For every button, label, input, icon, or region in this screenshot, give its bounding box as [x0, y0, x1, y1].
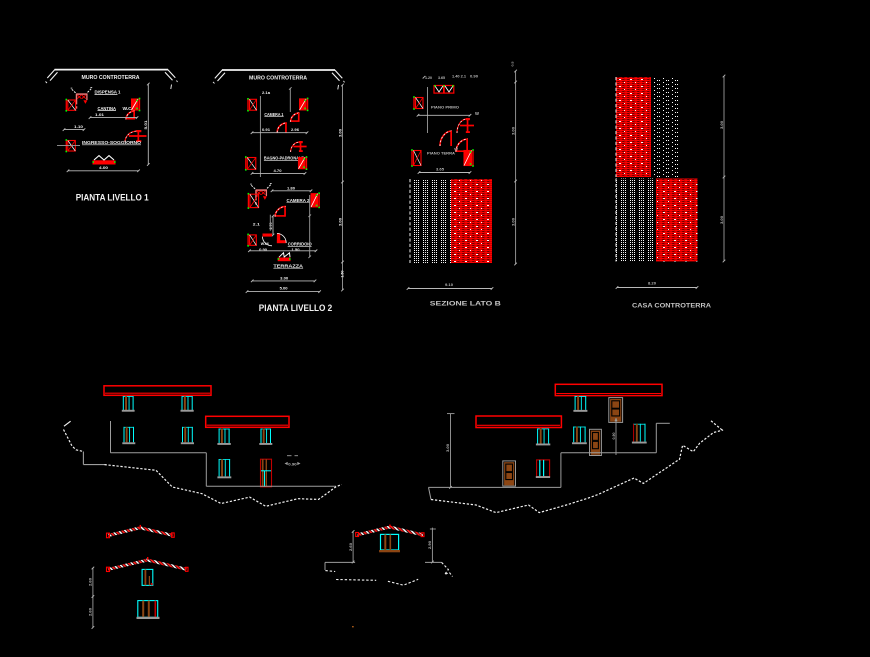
svg-text:1.80: 1.80 — [287, 187, 295, 191]
svg-text:TERRAZZA: TERRAZZA — [273, 263, 303, 268]
svg-text:8.20: 8.20 — [648, 282, 656, 286]
svg-text:3.00: 3.00 — [280, 277, 288, 281]
svg-text:5.00: 5.00 — [280, 287, 288, 291]
svg-text:3.65: 3.65 — [438, 76, 445, 80]
svg-text:PIANTA LIVELLO 2: PIANTA LIVELLO 2 — [259, 303, 333, 313]
svg-text:SEZIONE LATO B: SEZIONE LATO B — [430, 301, 502, 308]
svg-text:2.96: 2.96 — [291, 128, 299, 132]
svg-text:3.00: 3.00 — [512, 127, 516, 135]
svg-text:3.65: 3.65 — [436, 167, 444, 171]
svg-text:2.70: 2.70 — [269, 222, 273, 229]
svg-text:1.40 2.1: 1.40 2.1 — [452, 75, 466, 79]
svg-text:W.06: W.06 — [261, 242, 269, 246]
svg-text:W: W — [475, 111, 479, 116]
svg-text:1.50: 1.50 — [292, 248, 300, 252]
svg-text:PIANO PRIMO: PIANO PRIMO — [431, 105, 459, 109]
svg-text:INGRESSO-SOGGIORNO: INGRESSO-SOGGIORNO — [82, 140, 142, 145]
svg-text:CAMERA 1: CAMERA 1 — [264, 112, 284, 117]
svg-text:0.90: 0.90 — [259, 248, 267, 252]
svg-text:2.60: 2.60 — [349, 543, 353, 551]
svg-text:PIANTA LIVELLO 1: PIANTA LIVELLO 1 — [76, 193, 149, 203]
svg-text:0.90: 0.90 — [612, 432, 616, 439]
svg-text:0.90: 0.90 — [470, 75, 478, 79]
svg-text:3.00: 3.00 — [720, 216, 724, 224]
svg-text:2.60: 2.60 — [89, 608, 93, 616]
svg-text:1.50: 1.50 — [340, 270, 344, 277]
svg-text:CASA CONTROTERRA: CASA CONTROTERRA — [632, 303, 712, 310]
svg-text:3.00: 3.00 — [338, 218, 342, 226]
svg-text:0.90: 0.90 — [288, 462, 297, 467]
svg-text:4.70: 4.70 — [274, 169, 282, 173]
svg-text:2.60: 2.60 — [89, 578, 93, 586]
svg-text:2.1a: 2.1a — [262, 91, 271, 95]
svg-text:MURO CONTROTERRA: MURO CONTROTERRA — [82, 75, 140, 81]
svg-text:3.00: 3.00 — [338, 129, 342, 137]
svg-text:0.5: 0.5 — [511, 61, 515, 66]
svg-text:1.01: 1.01 — [95, 113, 104, 117]
svg-text:4.00: 4.00 — [99, 166, 108, 170]
svg-text:DISPENSA 1: DISPENSA 1 — [95, 90, 122, 95]
svg-text:2.90: 2.90 — [428, 541, 432, 549]
svg-text:CANTINA: CANTINA — [98, 106, 117, 111]
svg-text:1.20: 1.20 — [425, 76, 432, 80]
svg-text:3.00: 3.00 — [720, 121, 724, 129]
svg-text:MURO CONTROTERRA: MURO CONTROTERRA — [249, 76, 307, 82]
svg-text:W: W — [454, 148, 458, 152]
svg-text:CORRIDOIO: CORRIDOIO — [288, 242, 313, 247]
svg-text:CAMERA 2: CAMERA 2 — [287, 198, 311, 203]
svg-text:3.00: 3.00 — [512, 218, 516, 226]
svg-text:3.00: 3.00 — [446, 444, 450, 452]
svg-text:2.1: 2.1 — [253, 223, 260, 227]
svg-text:PIANO TERRA: PIANO TERRA — [427, 152, 455, 156]
svg-text:5.01: 5.01 — [144, 121, 148, 130]
svg-text:0.91: 0.91 — [262, 128, 270, 132]
svg-text:9.10: 9.10 — [445, 283, 453, 287]
svg-text:1.10: 1.10 — [74, 125, 83, 129]
